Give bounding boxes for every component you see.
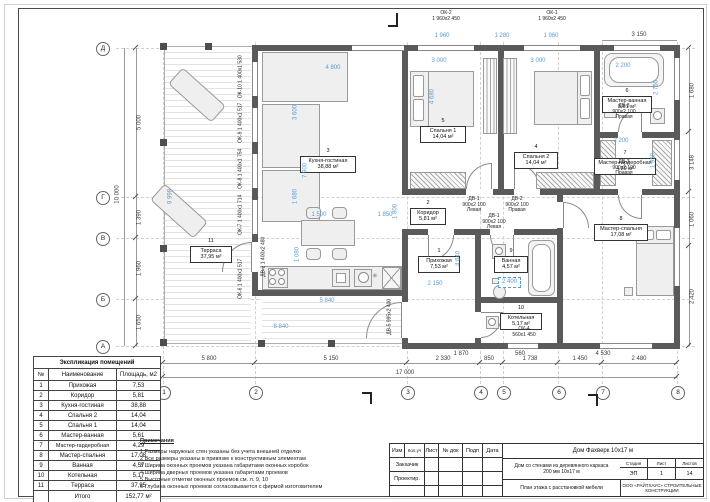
col-koluch: Кол.уч xyxy=(404,444,424,457)
dimension: 5 800 xyxy=(194,356,224,363)
room-number: 7 xyxy=(594,150,656,157)
room-area: 37,95 м² xyxy=(193,254,229,261)
cell: Терраса xyxy=(48,481,116,490)
doc-name: Дом со стенами из деревянного каркаса 20… xyxy=(503,459,620,479)
grid-bubble-6: 6 xyxy=(552,386,566,400)
empty-cell xyxy=(438,458,462,471)
col-izm: Изм xyxy=(390,444,404,457)
basin-bowl-icon xyxy=(653,111,662,120)
window-tag-ok6: ОК-6 1 400х1 517 xyxy=(238,249,244,309)
dimension: 1 680 xyxy=(293,182,300,212)
window xyxy=(352,45,404,51)
dimension: 5 840 xyxy=(312,298,342,305)
pillow-symbol xyxy=(580,75,590,96)
room-label-hall: 1Прихожая7,53 м² xyxy=(418,248,460,273)
title-block-right: Дом Фахверк 10х17 м Дом со стенами из де… xyxy=(502,444,703,496)
terrace-post xyxy=(328,340,335,347)
room-area: 14,04 м² xyxy=(423,134,463,141)
drawing-name: План этажа с расстановкой мебели xyxy=(503,480,620,496)
dimension: 4 640 xyxy=(456,244,463,274)
pillow-symbol xyxy=(413,75,424,97)
door-tag: ДВ-3900х2 100Правая xyxy=(606,104,642,121)
grid-bubble-d: Д xyxy=(96,42,110,56)
window-ok10 xyxy=(252,62,258,96)
wall-int xyxy=(481,297,563,303)
dimension-selected[interactable]: 2 400 xyxy=(498,277,521,288)
terrace-post xyxy=(258,340,265,347)
grid-bubble-4: 4 xyxy=(474,386,488,400)
dimension: 2 750 xyxy=(654,73,661,103)
window xyxy=(614,45,660,51)
section-mark xyxy=(588,394,598,406)
dimension-total: 10 000 xyxy=(115,180,122,210)
grid-bubble-3: 3 xyxy=(401,386,415,400)
room-number: 5 xyxy=(420,118,466,125)
room-number: 4 xyxy=(514,144,558,151)
bathtub-inner-symbol xyxy=(532,244,551,292)
door-tag: ДВ-2 1 400х2 480 xyxy=(261,231,267,283)
empty-cell xyxy=(462,486,482,496)
room-label-terrace: 11Терраса37,95 м² xyxy=(190,238,232,263)
room-number: 11 xyxy=(190,238,232,245)
wall-kitchen-bottom xyxy=(252,290,408,296)
sheets-value: 14 xyxy=(675,468,703,479)
dimension: 7 900 xyxy=(303,156,310,186)
cell: 5 xyxy=(34,421,48,430)
dimension: 2 150 xyxy=(420,281,450,288)
cell: Спальня 2 xyxy=(48,411,116,420)
nightstand-symbol xyxy=(624,287,633,296)
dimension: 1 800 xyxy=(393,197,400,227)
total-value: 152,77 м² xyxy=(116,491,160,502)
project-name: Дом Фахверк 10х17 м xyxy=(503,444,703,459)
room-number: 10 xyxy=(500,305,542,312)
room-area: 4,57 м² xyxy=(497,264,525,271)
sheet-value: 1 xyxy=(647,468,675,479)
burner-icon xyxy=(269,278,276,285)
window xyxy=(674,140,680,180)
dimension: 1 500 xyxy=(304,212,334,219)
empty-cell xyxy=(424,458,438,471)
dimension-total: 17 000 xyxy=(390,370,420,377)
grid-bubble-b: Б xyxy=(96,293,110,307)
room-number: 2 xyxy=(410,200,446,207)
cell: 11 xyxy=(34,481,48,490)
empty-cell xyxy=(390,486,424,496)
door-tag: ДВ-3900х2 100Правая xyxy=(606,160,642,177)
col-header: № xyxy=(34,369,48,380)
col-ndok: № док xyxy=(438,444,462,457)
organization-line2: КОНСТРУКЦИИ xyxy=(645,488,678,494)
closet-symbol xyxy=(536,172,594,189)
window-ok8 xyxy=(252,154,258,188)
cell: Коридор xyxy=(48,391,116,400)
dimension: 2 330 xyxy=(428,356,458,363)
notes-title: Примечания xyxy=(140,438,174,445)
window-ok7 xyxy=(252,200,258,234)
wall-int xyxy=(402,235,408,293)
empty-cell xyxy=(438,472,462,485)
cell xyxy=(34,491,48,502)
section-mark xyxy=(362,392,372,404)
empty-cell xyxy=(424,486,438,496)
dimension-line xyxy=(124,48,125,346)
room-area: 5,81 м² xyxy=(413,216,443,223)
room-number: 1 xyxy=(418,248,460,255)
drawing-sheet: ✳ 3Кухня-гостиная38,88 м² 5Спальня 114,0… xyxy=(0,0,710,502)
cell: 7 xyxy=(34,441,48,450)
cell: 38,88 xyxy=(116,401,160,410)
corner-cabinet-symbol xyxy=(382,267,401,289)
empty-cell xyxy=(482,458,502,471)
row-zakazchik: Заказчик xyxy=(390,458,424,471)
room-number: 9 xyxy=(494,248,528,255)
empty-cell xyxy=(482,472,502,485)
grid-bubble-v: В xyxy=(96,232,110,246)
oven-dial-icon xyxy=(358,272,369,283)
section-mark xyxy=(388,13,398,27)
dimension: 3 600 xyxy=(293,98,300,128)
burner-icon xyxy=(278,269,285,276)
door-opening xyxy=(466,189,493,195)
grid-bubble-8: 8 xyxy=(671,386,685,400)
dimension: 1 950 xyxy=(651,146,658,176)
title-block: Изм Кол.уч Лист № док Подп Дата Заказчик… xyxy=(389,443,704,497)
kitchen-cabinet-symbol xyxy=(262,52,348,102)
dimension: 3 000 xyxy=(424,58,454,65)
cell: Прихожая xyxy=(48,381,116,390)
dimension: 1 060 xyxy=(690,205,697,235)
room-number: 8 xyxy=(594,216,648,223)
note-item: 3 Ширина оконных проемов указана габарит… xyxy=(140,463,308,470)
dimension: 1 738 xyxy=(515,356,545,363)
cell: 7,53 xyxy=(116,381,160,390)
cell: Ванная xyxy=(48,461,116,470)
room-area: 38,88 м² xyxy=(303,164,353,171)
dimension: 1 390 xyxy=(137,203,144,233)
dimension: 2 200 xyxy=(606,138,636,145)
room-area: 7,53 м² xyxy=(421,264,457,271)
window xyxy=(600,343,652,349)
dimension: 5 150 xyxy=(316,356,346,363)
empty-cell xyxy=(424,472,438,485)
dimension: 1 960 xyxy=(536,33,566,40)
window xyxy=(674,228,680,286)
wardrobe-symbol xyxy=(483,58,497,134)
chair-symbol xyxy=(306,248,321,260)
pillow-symbol xyxy=(580,98,590,119)
total-label: Итого xyxy=(48,491,116,502)
cell: 6 xyxy=(34,431,48,440)
cell: 2 xyxy=(34,391,48,400)
grid-bubble-g: Г xyxy=(96,191,110,205)
window-tag-ok1: ОК-11 960х2 450 xyxy=(526,11,578,22)
grid-bubble-5: 5 xyxy=(497,386,511,400)
lamp-icon: ✳ xyxy=(372,274,378,280)
room-number: 3 xyxy=(300,148,356,155)
cell: 8 xyxy=(34,451,48,460)
boiler-dial-icon xyxy=(488,318,496,326)
sheets-label: Листов xyxy=(675,459,703,467)
terrace-post xyxy=(160,339,167,346)
empty-cell xyxy=(438,486,462,496)
door-tag: ДВ-2900х2 100Правая xyxy=(500,197,534,214)
stage-value: ЭП xyxy=(620,468,647,479)
dimension: 1 280 xyxy=(487,33,517,40)
col-data: Дата xyxy=(482,444,502,457)
room-label-bedroom2: 4Спальня 214,04 м² xyxy=(514,144,558,169)
room-label-bedroom1: 5Спальня 114,04 м² xyxy=(420,118,466,143)
cell: 14,04 xyxy=(116,411,160,420)
dimension: 2 480 xyxy=(624,356,654,363)
col-header: Площадь, м2 xyxy=(116,369,160,380)
empty-cell xyxy=(462,472,482,485)
room-label-corridor: 2Коридор5,81 м² xyxy=(410,200,446,225)
room-label-master-bedroom: 8Мастер-спальня17,08 м² xyxy=(594,216,648,241)
room-area: 14,04 м² xyxy=(517,160,555,167)
chair-symbol xyxy=(332,207,347,219)
pillow-symbol xyxy=(656,230,671,240)
wardrobe-symbol xyxy=(503,58,517,134)
grid-bubble-a: А xyxy=(96,340,110,354)
dimension-line xyxy=(136,48,137,346)
note-item: 2 Все размеры указаны в привязке к конст… xyxy=(140,456,306,463)
dimension: 1 080 xyxy=(295,240,302,270)
note-item: 4 Ширина дверных проемов указана габарит… xyxy=(140,470,288,477)
cell: Мастер-ванная xyxy=(48,431,116,440)
dimension: 3 150 xyxy=(624,32,654,39)
empty-cell xyxy=(482,486,502,496)
cell: 10 xyxy=(34,471,48,480)
window-ok9 xyxy=(252,108,258,142)
window xyxy=(674,58,680,100)
dimension: 4 800 xyxy=(318,65,348,72)
cell: Мастер-гардеробная xyxy=(48,441,116,450)
table-title: Экспликация помещений xyxy=(34,357,160,368)
dimension: 2 420 xyxy=(690,282,697,312)
dimension-line xyxy=(163,377,677,378)
burner-icon xyxy=(278,278,285,285)
dimension: 8 840 xyxy=(266,324,296,331)
terrace-post xyxy=(205,43,212,50)
stage-label: Стадия xyxy=(620,459,647,467)
row-proektir: Проектир. xyxy=(390,472,424,485)
door-tag: ДВ-5 995х2 400 xyxy=(387,293,393,341)
room-label-bathroom: 9Ванная4,57 м² xyxy=(494,248,528,273)
dimension: 3 000 xyxy=(523,58,553,65)
window-tag-ok2: ОК-21 960х2 450 xyxy=(420,11,472,22)
dimension: 4 680 xyxy=(430,82,437,112)
room-number: 6 xyxy=(602,88,652,95)
cell: Спальня 1 xyxy=(48,421,116,430)
col-header: Наименование xyxy=(48,369,116,380)
door-tag: ДВ-1900х2 100Левая xyxy=(478,214,510,231)
cell: Мастер-спальня xyxy=(48,451,116,460)
door-opening xyxy=(252,242,258,272)
cell: 14,04 xyxy=(116,421,160,430)
note-item: 1 Размеры наружных стен указаны без учет… xyxy=(140,449,301,456)
bed-line xyxy=(577,72,578,124)
dimension: 1 680 xyxy=(690,76,697,106)
note-item: 6 Глубина оконных проемов согласовываетс… xyxy=(140,484,322,491)
cell: 9 xyxy=(34,461,48,470)
cell: Котельная xyxy=(48,471,116,480)
dimension: 9 998 xyxy=(168,182,175,212)
sheet-label: Лист xyxy=(647,459,675,467)
dimension: 5 000 xyxy=(137,108,144,138)
wall-int xyxy=(402,45,408,195)
bed-line xyxy=(637,243,673,244)
col-podp: Подп xyxy=(462,444,482,457)
col-list: Лист xyxy=(424,444,438,457)
room-area: 17,08 м² xyxy=(597,232,645,239)
sink-bowl-symbol xyxy=(336,273,346,283)
window-tag-ok7: ОК-7 1 400х1 714 xyxy=(238,185,244,245)
cell: 3 xyxy=(34,401,48,410)
grid-bubble-2: 2 xyxy=(249,386,263,400)
cell: 4 xyxy=(34,411,48,420)
window-ok4 xyxy=(508,343,538,349)
cell: 5,81 xyxy=(116,391,160,400)
dimension-line xyxy=(602,40,677,41)
bathtub-inner-symbol xyxy=(609,57,659,83)
burner-icon xyxy=(269,269,276,276)
note-item: 5 Высотные отметки оконных проемов см. л… xyxy=(140,477,268,484)
signature-grid: Изм Кол.уч Лист № док Подп Дата Заказчик… xyxy=(390,444,502,496)
dimension: 1 450 xyxy=(565,356,595,363)
dimension: 1 960 xyxy=(427,33,457,40)
door-opening xyxy=(514,189,540,195)
dimension: 1 650 xyxy=(137,308,144,338)
terrace-post xyxy=(160,245,167,252)
terrace-edge xyxy=(164,343,404,344)
empty-cell xyxy=(462,458,482,471)
dimension: 850 xyxy=(477,356,501,363)
door-tag: ДВ-1900х2 100Левая xyxy=(458,197,490,214)
dimension: 3 148 xyxy=(690,148,697,178)
window-ok1 xyxy=(524,45,580,51)
chair-symbol xyxy=(332,248,347,260)
door-opening xyxy=(402,302,408,338)
dimension: 1 960 xyxy=(137,254,144,284)
cell: 1 xyxy=(34,381,48,390)
grid-bubble-7: 7 xyxy=(596,386,610,400)
closet-symbol xyxy=(410,172,466,189)
terrace-post xyxy=(160,43,167,50)
organization: ООО «РАЙТХАУС» СТРОИТЕЛЬНЫЕ КОНСТРУКЦИИ xyxy=(620,480,703,496)
doc-name-line2: 200 мм 10х17 м xyxy=(543,469,579,475)
terrace-post xyxy=(160,139,167,146)
dimension: 2 200 xyxy=(608,63,638,70)
window-ok2 xyxy=(418,45,474,51)
dining-table-symbol xyxy=(301,220,355,246)
window-tag-ok4: ОК-4560х1 450 xyxy=(506,327,542,338)
cell: Кухня-гостиная xyxy=(48,401,116,410)
